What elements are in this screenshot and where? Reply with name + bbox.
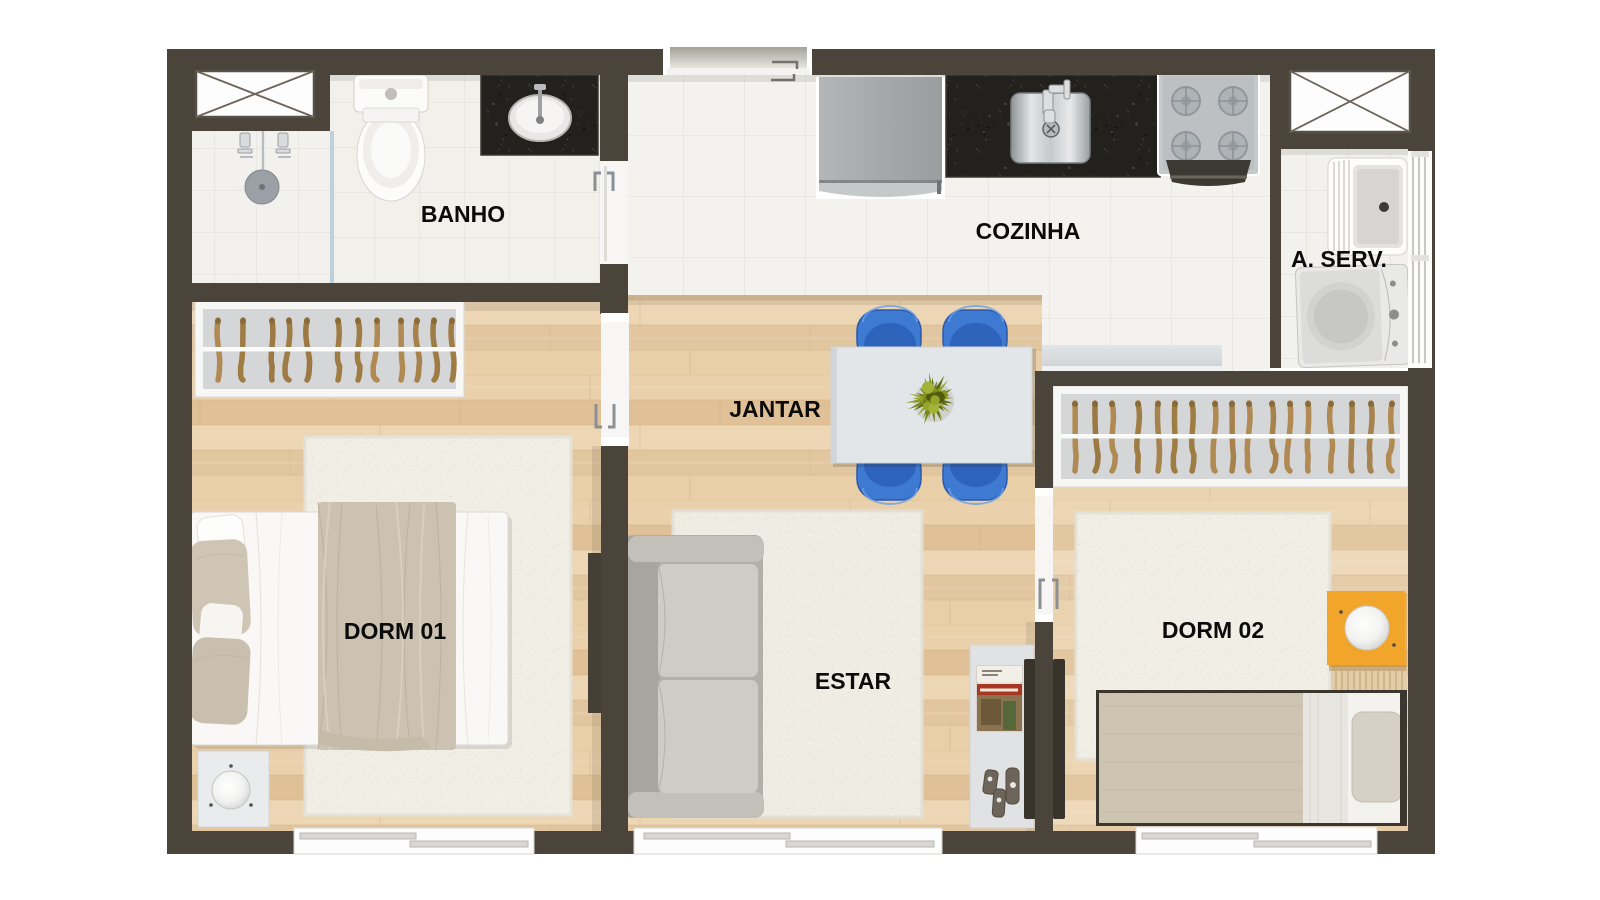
svg-text:DORM 01: DORM 01	[344, 618, 446, 644]
svg-text:ESTAR: ESTAR	[815, 668, 892, 694]
svg-text:BANHO: BANHO	[421, 201, 505, 227]
svg-text:A. SERV.: A. SERV.	[1291, 246, 1387, 272]
svg-text:DORM 02: DORM 02	[1162, 617, 1264, 643]
svg-text:JANTAR: JANTAR	[729, 396, 821, 422]
svg-text:COZINHA: COZINHA	[976, 218, 1081, 244]
